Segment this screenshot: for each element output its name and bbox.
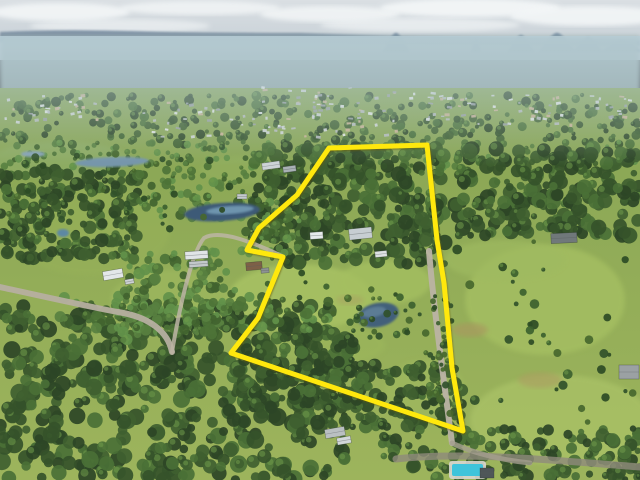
tree [15,324,24,333]
tree-highlight [126,221,132,227]
tree [81,396,90,405]
tree [166,313,175,322]
tree-highlight [382,453,385,456]
tree [617,209,628,220]
tree [390,237,399,246]
tree [2,360,12,370]
tree-highlight [98,442,103,447]
tree [331,311,337,317]
tree-highlight [564,223,571,230]
tree-highlight [354,314,357,317]
tree [301,360,312,371]
tree [99,456,113,470]
tree [46,246,57,257]
tree-highlight [132,169,134,171]
tree-highlight [36,211,38,213]
tree-highlight [439,463,443,467]
tree [465,280,474,289]
tree [27,254,34,261]
tree-highlight [592,441,597,446]
tree-highlight [272,221,276,225]
tree [219,207,225,213]
tree [418,247,425,254]
tree [410,243,419,252]
tree [310,415,325,430]
tree [232,301,244,313]
tree [41,202,48,209]
tree [187,167,196,176]
tree [448,303,453,308]
tree-highlight [446,359,448,361]
tree [131,230,143,242]
tree [415,433,422,440]
tree-highlight [346,252,350,256]
tree [284,308,291,315]
tree [139,361,149,371]
tree [376,333,383,340]
tree [142,202,151,211]
tree-highlight [391,238,395,242]
tree [433,390,439,396]
tree [470,395,480,405]
tree [41,451,55,465]
tree [162,205,167,210]
tree [320,199,330,209]
tree [235,459,245,469]
tree-highlight [113,199,119,205]
tree [209,177,219,187]
tree-highlight [436,381,438,383]
tree [262,341,271,350]
tree-highlight [176,166,179,169]
tree-highlight [245,378,250,383]
tree-highlight [103,178,106,181]
tree [223,325,230,332]
tree [253,300,260,307]
tree [408,302,415,309]
tree [344,295,352,303]
tree [161,222,165,226]
paddock-patch [445,240,565,280]
tree [549,182,557,190]
tree-highlight [434,391,437,394]
tree-highlight [520,167,526,173]
tree [313,185,324,196]
tree [296,427,309,440]
tree-highlight [457,222,464,229]
tree [218,386,228,396]
tree [79,194,88,203]
tree [127,205,132,210]
tree [442,334,447,339]
tree [221,305,227,311]
cloud [320,18,520,32]
tree [551,189,563,201]
tree [553,349,561,357]
tree-highlight [328,417,331,420]
tree [270,392,280,402]
tree [429,410,434,415]
tree-highlight [121,322,125,326]
tree [87,188,96,197]
tree-highlight [40,179,43,182]
tree-highlight [322,316,326,320]
tree-highlight [312,353,318,359]
paddock-patch [518,372,562,388]
tree [409,364,420,375]
tree [500,443,507,450]
tree-highlight [376,257,381,262]
tree [585,335,594,344]
tree [160,254,171,265]
tree-highlight [99,470,104,475]
tree-highlight [154,193,158,197]
tree [622,256,629,263]
tree [62,456,76,470]
tree [86,360,102,376]
tree [339,415,352,428]
tree [210,315,217,322]
tree-highlight [184,317,189,322]
tree [329,246,338,255]
tree [351,328,356,333]
tree [172,171,177,176]
tree-highlight [265,186,272,193]
tree [343,243,349,249]
tree [15,251,25,261]
tree [433,294,437,298]
tree-highlight [519,473,523,477]
tree [452,245,462,255]
tree-highlight [278,230,280,232]
tree-highlight [210,178,214,182]
tree [16,225,27,236]
tree [103,366,113,376]
tree-highlight [83,312,87,316]
tree-highlight [499,398,501,400]
tree-highlight [519,449,525,455]
tree [111,198,125,212]
tree-highlight [188,167,192,171]
tree [629,389,637,397]
building [480,468,494,478]
tree [499,424,509,434]
tree [358,204,370,216]
tree-highlight [512,270,516,274]
tree [81,451,98,468]
tree-highlight [193,329,196,332]
tree [68,209,75,216]
tree [133,268,144,279]
tree [543,424,554,435]
tree [563,369,573,379]
tree [20,375,31,386]
tree [500,472,507,479]
tree [324,404,337,417]
tree-highlight [207,283,212,288]
tree [371,329,377,335]
tree [287,377,295,385]
tree-highlight [372,297,374,299]
tree [150,199,158,207]
tree-highlight [331,393,335,397]
tree [489,177,500,188]
tree [1,184,12,195]
tree [469,170,477,178]
tree-highlight [240,166,242,168]
tree-highlight [178,456,182,460]
tree-highlight [3,403,9,409]
tree-highlight [361,320,365,324]
tree [130,192,136,198]
tree-highlight [284,235,288,239]
tree [108,251,117,260]
tree-highlight [7,325,12,330]
tree [313,174,324,185]
tree [396,293,404,301]
tree [270,238,276,244]
tree [193,294,201,302]
cloud [120,1,280,15]
tree [383,310,391,318]
tree [330,392,338,400]
tree [436,395,444,403]
tree [365,411,377,423]
tree [133,295,141,303]
tree-highlight [307,327,310,330]
tree [47,193,59,205]
tree [318,256,332,270]
tree-highlight [328,328,334,334]
tree-highlight [292,334,298,340]
tree [280,351,287,358]
tree [29,382,42,395]
tree [385,376,395,386]
tree-highlight [153,264,158,269]
tree-highlight [141,387,148,394]
swimming-pool [452,464,483,476]
tree [181,173,187,179]
tree [508,431,521,444]
tree [272,357,280,365]
tree-highlight [280,344,285,349]
tree [618,226,631,239]
tree [197,269,208,280]
tree-highlight [30,362,34,366]
tree-highlight [350,424,353,427]
tree [263,307,274,318]
tree [272,317,279,324]
tree [606,433,619,446]
tree [406,317,413,324]
tree [333,233,341,241]
tree [13,170,23,180]
tree [244,377,255,388]
tree [58,216,65,223]
tree [431,356,436,361]
tree-highlight [394,332,397,335]
tree [303,280,307,284]
tree-highlight [379,422,383,426]
tree-highlight [28,447,34,453]
tree [402,236,410,244]
tree-highlight [42,322,50,330]
tree-highlight [335,179,341,185]
tree [140,279,147,286]
tree [390,366,402,378]
tree-highlight [159,349,165,355]
tree [419,232,433,246]
tree-highlight [107,167,110,170]
aerial-scene-svg [0,0,640,480]
tree [209,298,218,307]
tree [42,218,52,228]
tree [355,412,364,421]
tree [123,293,130,300]
tree [338,340,347,349]
tree [246,431,264,449]
tree-highlight [280,169,284,173]
tree [162,180,172,190]
tree-highlight [112,346,118,352]
tree [118,170,126,178]
tree [98,253,109,264]
tree [313,401,323,411]
tree-highlight [541,450,544,453]
tree [390,433,402,445]
tree [288,388,301,401]
tree [498,398,503,403]
tree-highlight [179,430,185,436]
tree [323,284,329,290]
tree [531,239,536,244]
tree-highlight [44,211,49,216]
tree [426,382,435,391]
tree [124,210,130,216]
tree-highlight [198,271,203,276]
tree [137,459,149,471]
tree-highlight [432,473,438,479]
tree [80,236,91,247]
tree-highlight [275,200,278,203]
tree [287,174,293,180]
tree [391,166,407,182]
tree [323,185,333,195]
tree [541,333,546,338]
tree-highlight [280,297,283,300]
tree-highlight [75,399,80,404]
tree-highlight [441,342,444,345]
tree-highlight [406,443,409,446]
tree-highlight [500,263,504,267]
tree-highlight [301,213,308,220]
tree-highlight [88,189,92,193]
tree-highlight [471,396,475,400]
tree [222,176,227,181]
tree [297,295,303,301]
tree-highlight [486,442,491,447]
tree [395,205,402,212]
tree-highlight [264,308,269,313]
tree [312,368,319,375]
tree-highlight [264,176,267,179]
tree-highlight [179,283,184,288]
tree [29,202,39,212]
tree [591,220,606,235]
tree-highlight [271,238,274,241]
tree-highlight [264,202,267,205]
tree [276,308,283,315]
tree [168,282,175,289]
tree [110,191,117,198]
tree [291,333,304,346]
tree [200,214,207,221]
tree [348,337,359,348]
tree [1,246,14,259]
tree [319,471,328,480]
tree [98,207,103,212]
tree-highlight [44,232,47,235]
tree [2,313,13,324]
tree-highlight [424,351,426,353]
tree-highlight [637,474,640,477]
tree [403,309,407,313]
tree [280,334,288,342]
tree [455,231,463,239]
tree [566,443,577,454]
tree [206,282,218,294]
tree [563,430,572,439]
tree [26,233,35,242]
building [619,365,639,379]
tree [339,199,353,213]
tree [100,188,105,193]
tree [147,304,159,316]
tree [127,253,139,265]
tree [297,218,302,223]
tree-highlight [370,317,373,320]
tree-highlight [284,218,287,221]
tree [97,218,107,228]
tree [10,384,28,402]
tree [204,374,216,386]
tree [177,428,190,441]
tree [182,459,193,470]
tree [578,429,584,435]
tree [350,424,356,430]
tree-highlight [58,211,60,213]
tree [517,182,525,190]
tree [598,194,613,209]
tree [533,443,541,451]
tree [404,329,410,335]
tree [162,213,167,218]
tree [266,369,274,377]
tree [136,170,145,179]
tree [171,250,178,257]
tree-highlight [394,311,396,313]
tree [630,192,640,202]
tree-highlight [134,296,138,300]
tree [40,321,57,338]
tree-highlight [619,447,625,453]
tree [120,251,127,258]
tree [173,263,181,271]
tree [218,397,229,408]
tree [613,183,623,193]
tree [298,270,305,277]
tree [144,256,152,264]
